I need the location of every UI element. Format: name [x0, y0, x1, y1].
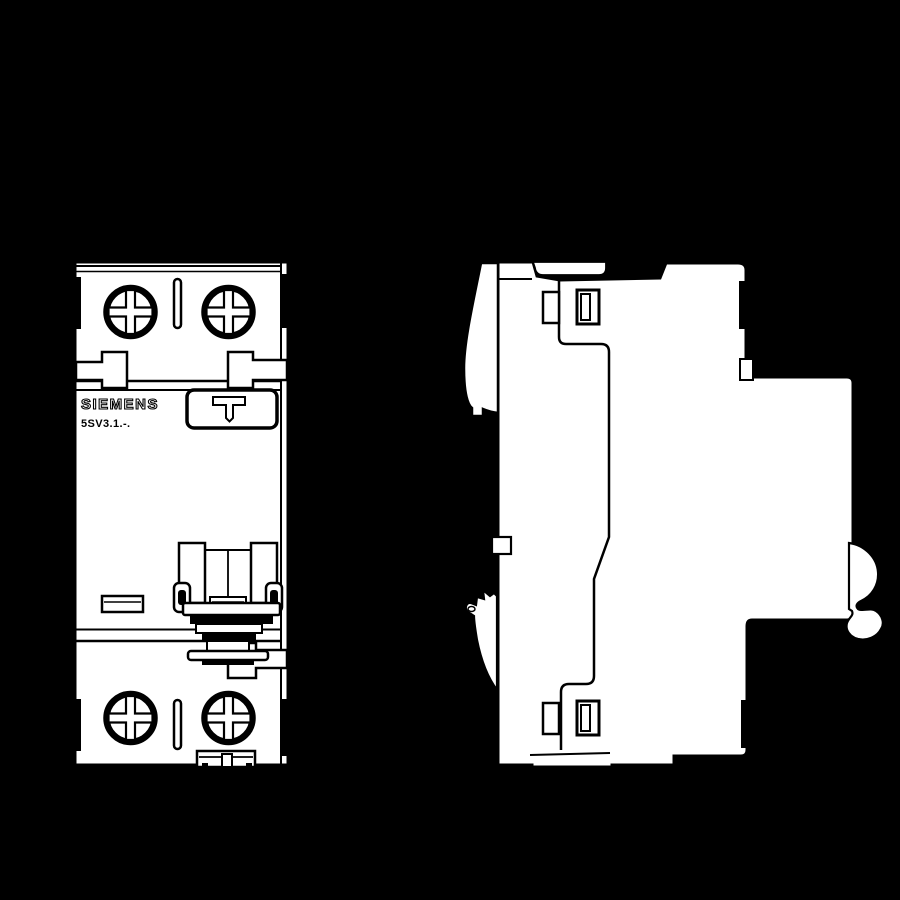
rccb-line-drawing: SIEMENS 5SV3.1.-.: [0, 0, 900, 900]
notch-bottom-right: [281, 699, 289, 756]
notch-top-left: [73, 277, 81, 329]
screw-top-right-icon: [205, 288, 253, 336]
top-recess-cap: [533, 262, 606, 275]
screw-top-left-icon: [107, 288, 155, 336]
front-tab: [492, 537, 511, 554]
technical-drawing-canvas: SIEMENS 5SV3.1.-.: [0, 0, 900, 900]
front-housing-outline: [75, 262, 288, 765]
test-button: [187, 390, 277, 428]
rear-edge-notch-bottom: [741, 700, 747, 748]
marking-window: [102, 596, 143, 612]
rear-edge-tab: [740, 359, 753, 380]
vent-slot-top: [174, 279, 181, 328]
vent-slot-bottom: [174, 700, 181, 749]
model-label: 5SV3.1.-.: [81, 418, 130, 430]
screw-bottom-right-icon: [205, 694, 253, 742]
brand-label: SIEMENS: [81, 396, 159, 413]
din-slide-front: [197, 751, 255, 767]
screw-bottom-left-icon: [107, 694, 155, 742]
rear-edge-notch-top: [739, 281, 746, 329]
front-view: SIEMENS 5SV3.1.-.: [73, 262, 289, 767]
notch-top-right: [281, 274, 289, 328]
notch-bottom-left: [73, 699, 81, 751]
